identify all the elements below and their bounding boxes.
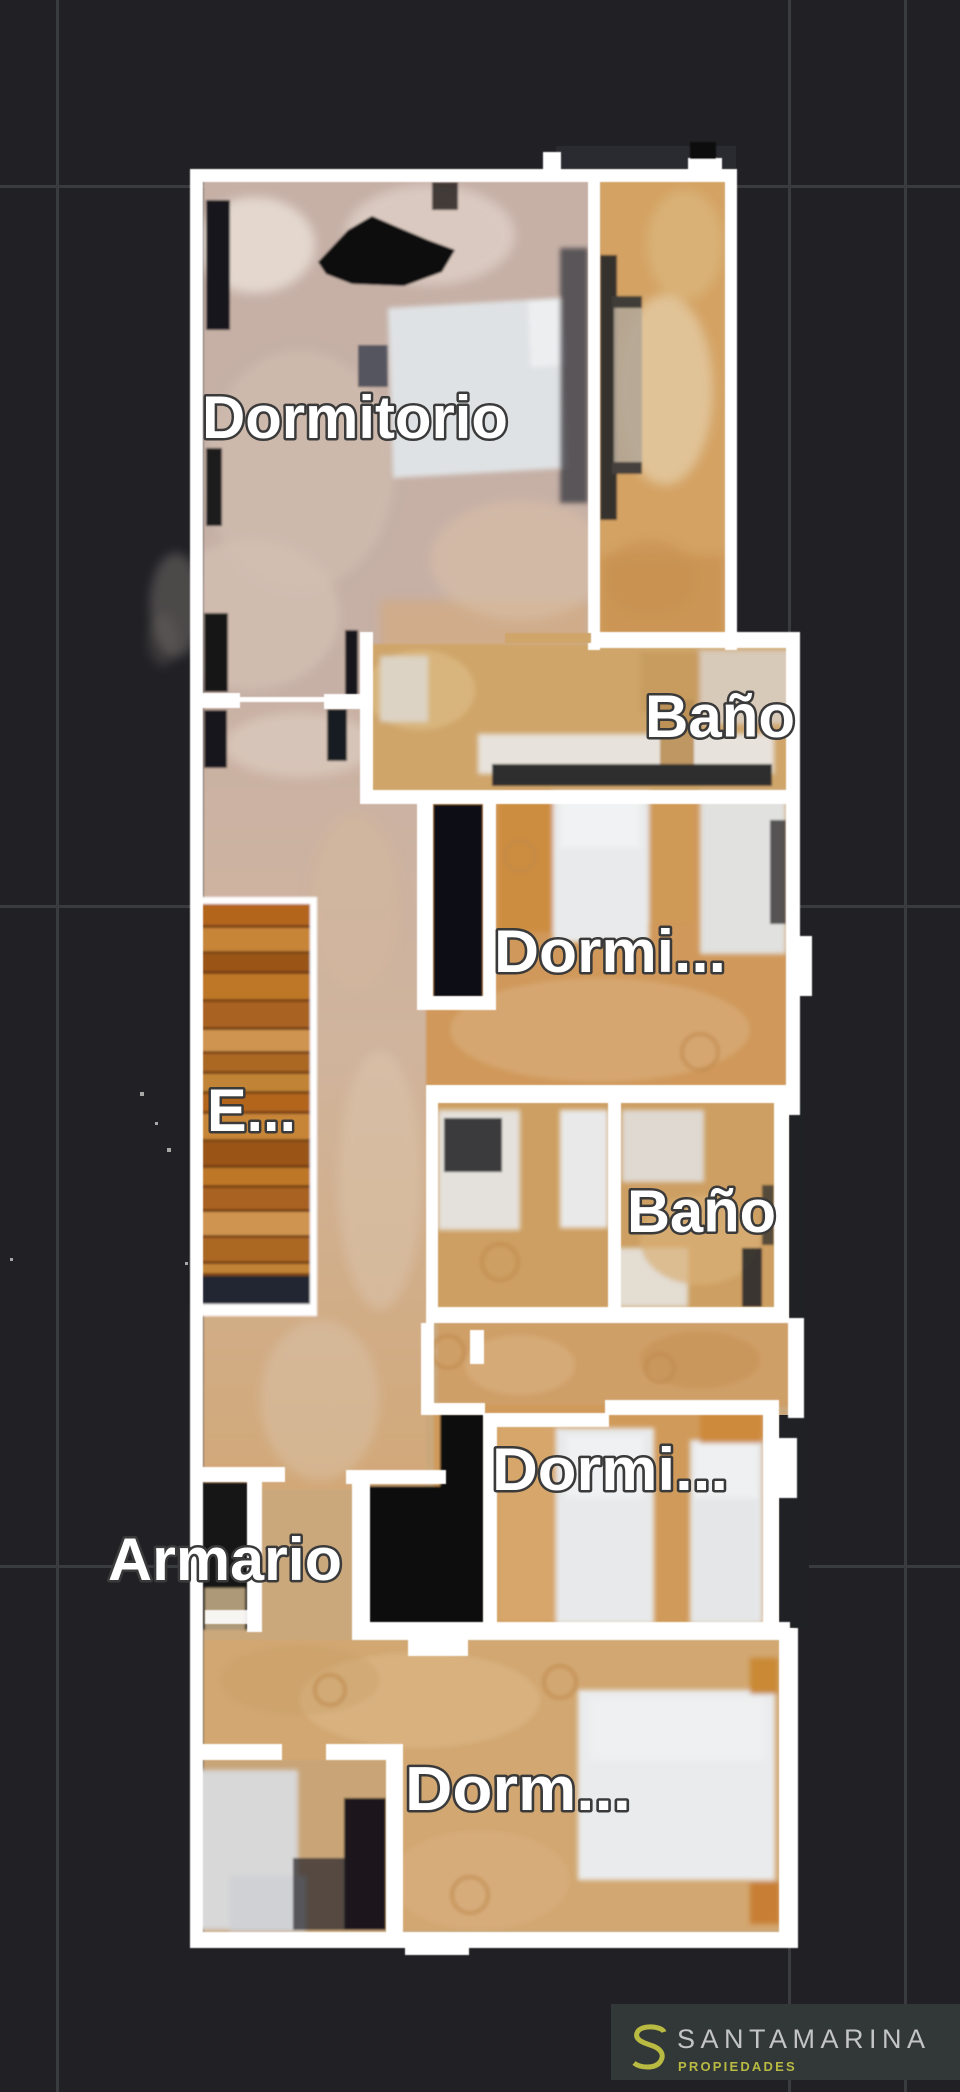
svg-text:Baño: Baño (645, 683, 795, 750)
svg-text:Baño: Baño (627, 1178, 776, 1245)
svg-text:PROPIEDADES: PROPIEDADES (678, 2059, 797, 2074)
svg-text:Dormi...: Dormi... (494, 918, 726, 985)
svg-text:Dormi...: Dormi... (492, 1436, 728, 1503)
svg-text:E...: E... (207, 1077, 296, 1144)
svg-text:Armario: Armario (108, 1526, 342, 1593)
svg-text:Dorm...: Dorm... (405, 1755, 631, 1824)
svg-text:SANTAMARINA: SANTAMARINA (677, 2024, 931, 2054)
svg-text:Dormitorio: Dormitorio (202, 384, 508, 451)
